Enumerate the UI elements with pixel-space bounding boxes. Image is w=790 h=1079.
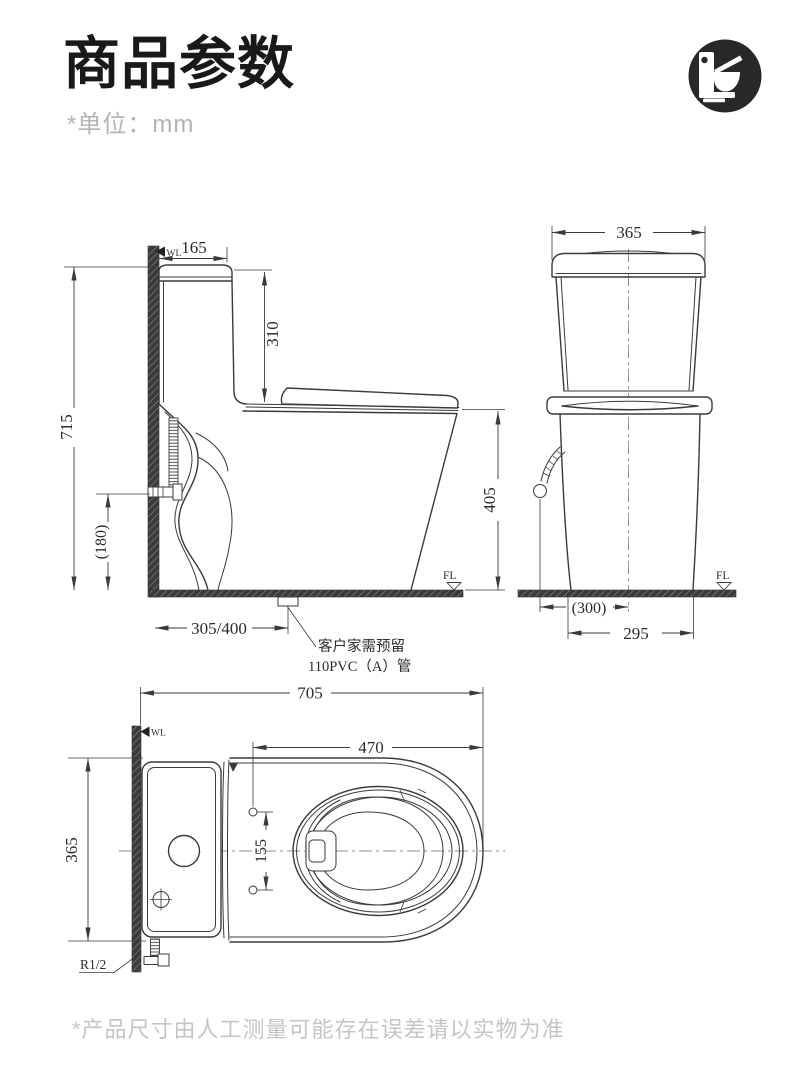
- side-floor-line-label: FL: [443, 570, 456, 582]
- front-toilet-outline: [534, 251, 713, 590]
- front-floor-line-label: FL: [716, 570, 729, 582]
- dim-rough-in: 305/400: [155, 608, 288, 638]
- top-toilet-outline: [142, 758, 483, 966]
- unit-note: *单位：mm: [67, 104, 194, 139]
- top-flush-button: [169, 836, 200, 867]
- page-title: 商品参数: [63, 36, 295, 93]
- side-toilet-outline: [148, 265, 459, 590]
- side-drain-outlet: [278, 597, 298, 606]
- svg-text:295: 295: [623, 624, 649, 643]
- svg-text:365: 365: [62, 837, 81, 863]
- dim-inlet-thread: R1/2: [79, 957, 133, 973]
- svg-text:715: 715: [57, 414, 76, 440]
- front-seat-band: [547, 397, 712, 414]
- svg-text:305/400: 305/400: [191, 619, 247, 638]
- drain-note-line1: 客户家需预留: [318, 638, 405, 655]
- top-wall: [132, 726, 141, 972]
- dim-bowl-height: 405: [462, 410, 505, 591]
- svg-text:(180): (180): [93, 525, 110, 560]
- side-seat-lid: [281, 388, 458, 408]
- side-floor-line: [150, 590, 463, 597]
- front-hose-connector: [534, 485, 547, 498]
- svg-text:165: 165: [181, 238, 207, 257]
- dim-seat-length: 470: [253, 738, 483, 806]
- disclaimer-note: *产品尺寸由人工测量可能存在误差请以实物为准: [72, 1012, 565, 1044]
- svg-text:R1/2: R1/2: [80, 957, 106, 972]
- svg-text:155: 155: [253, 839, 270, 863]
- side-floor-line-marker-icon: [447, 583, 461, 591]
- svg-text:310: 310: [263, 321, 282, 347]
- dimension-drawings: WL: [0, 200, 790, 1015]
- dim-inlet-offset: (300): [540, 499, 629, 617]
- svg-text:705: 705: [297, 684, 323, 703]
- top-hinge-hole-front: [249, 808, 257, 816]
- front-supply-hose: [534, 447, 566, 498]
- dim-tank-to-seat: 310: [234, 270, 282, 402]
- front-floor-line: [518, 590, 736, 597]
- drain-note-leader-line: [287, 606, 316, 647]
- svg-text:405: 405: [480, 487, 499, 513]
- drain-note-line2: 110PVC（A）管: [308, 658, 411, 675]
- side-supply-hose: [169, 418, 178, 494]
- svg-text:(300): (300): [572, 600, 607, 617]
- side-wall: [148, 246, 159, 597]
- top-wall-line-label: WL: [151, 729, 166, 739]
- top-wall-line-marker-icon: [141, 727, 150, 738]
- side-view-drawing: WL: [57, 238, 505, 675]
- front-view-drawing: FL 365 (300) 295: [518, 223, 736, 643]
- dim-inlet-height: (180): [93, 494, 150, 590]
- front-floor-line-marker-icon: [717, 583, 731, 591]
- top-inlet-valve: [144, 939, 169, 966]
- svg-text:365: 365: [616, 223, 642, 242]
- toilet-icon: [688, 39, 762, 113]
- side-wall-line-label: WL: [167, 249, 182, 259]
- top-hinge-hole-rear: [249, 886, 257, 894]
- top-view-drawing: WL: [62, 684, 505, 973]
- svg-text:470: 470: [358, 738, 384, 757]
